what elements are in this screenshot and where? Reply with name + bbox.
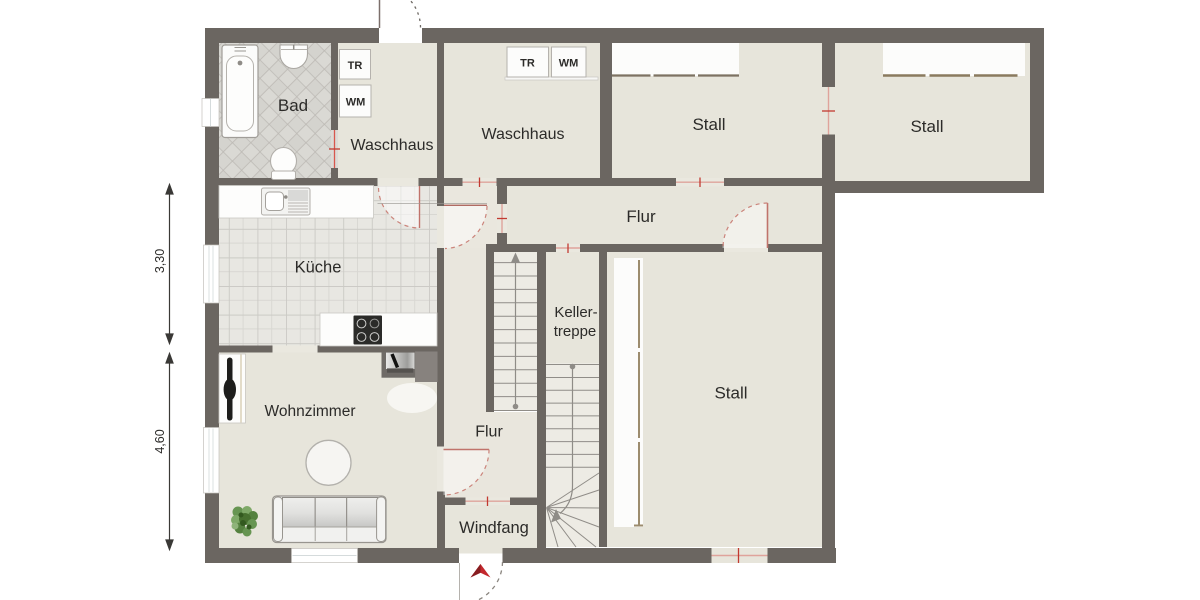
svg-text:TR: TR xyxy=(520,58,535,70)
svg-text:Wohnzimmer: Wohnzimmer xyxy=(264,403,355,420)
svg-text:treppe: treppe xyxy=(554,323,597,340)
svg-text:Stall: Stall xyxy=(714,384,747,403)
svg-text:Küche: Küche xyxy=(295,259,342,277)
svg-text:4,60: 4,60 xyxy=(153,429,167,453)
svg-text:WM: WM xyxy=(346,97,366,109)
svg-text:Waschhaus: Waschhaus xyxy=(482,126,565,143)
svg-text:Flur: Flur xyxy=(475,424,503,441)
svg-text:Bad: Bad xyxy=(278,96,308,115)
svg-text:3,30: 3,30 xyxy=(153,249,167,273)
svg-text:Flur: Flur xyxy=(626,207,656,226)
svg-text:WM: WM xyxy=(559,58,579,70)
svg-text:Stall: Stall xyxy=(910,117,943,136)
svg-text:Keller-: Keller- xyxy=(554,304,597,321)
svg-text:Stall: Stall xyxy=(692,115,725,134)
svg-text:Waschhaus: Waschhaus xyxy=(351,137,434,154)
svg-text:TR: TR xyxy=(348,60,363,72)
svg-text:Windfang: Windfang xyxy=(459,519,529,537)
